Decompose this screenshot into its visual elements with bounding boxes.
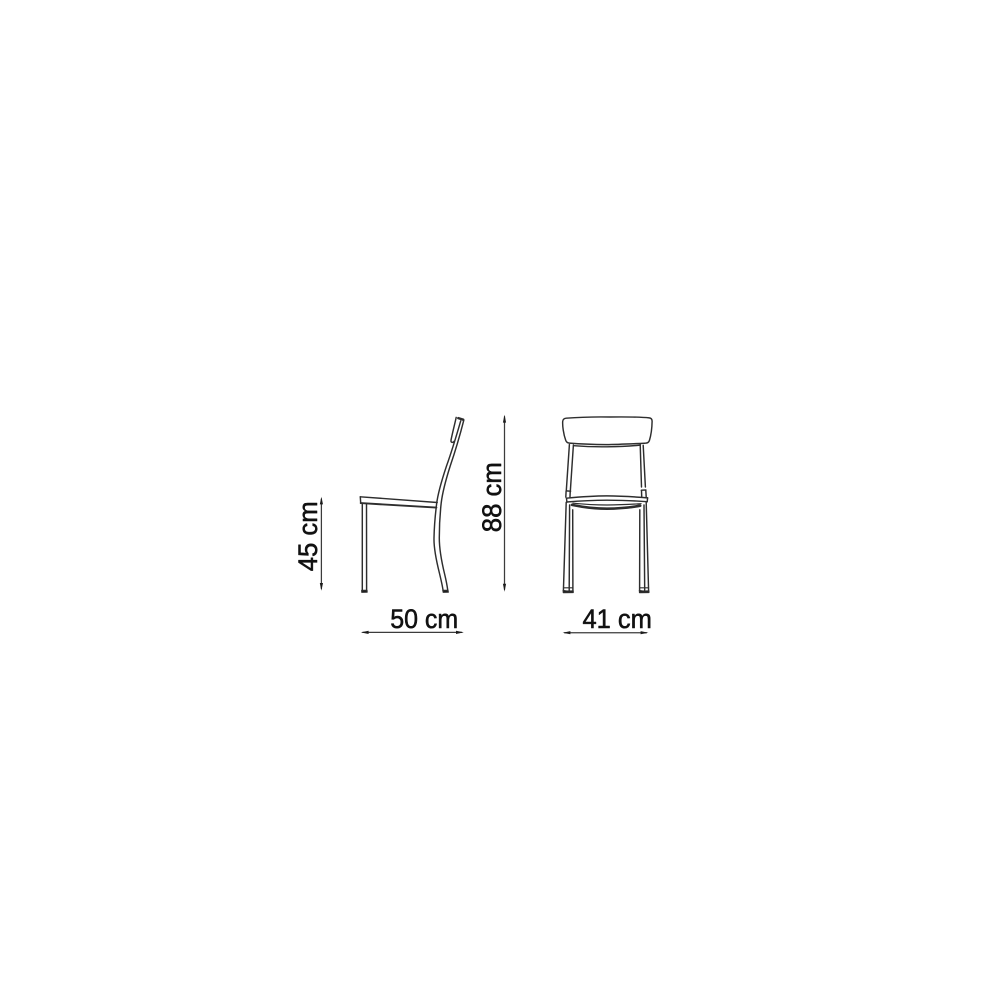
svg-text:41 cm: 41 cm (582, 604, 652, 634)
svg-text:88 cm: 88 cm (477, 462, 507, 532)
svg-text:45 cm: 45 cm (293, 501, 323, 571)
svg-text:50 cm: 50 cm (390, 604, 458, 634)
